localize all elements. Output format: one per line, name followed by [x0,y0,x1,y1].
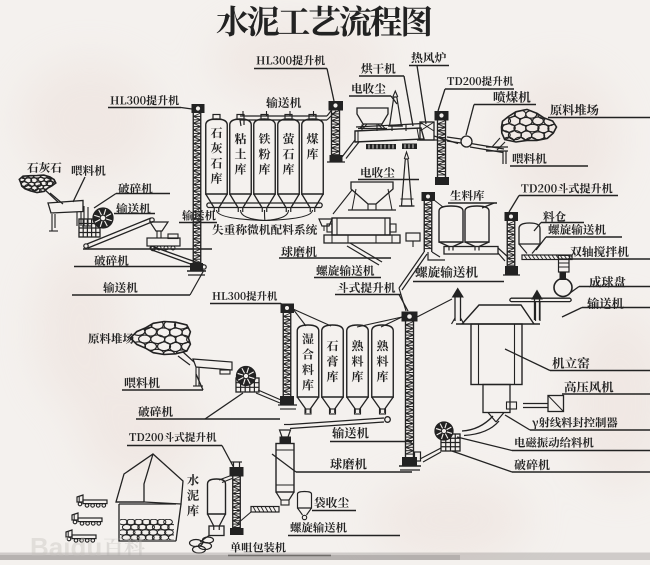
svg-text:Baidu: Baidu [30,532,102,560]
